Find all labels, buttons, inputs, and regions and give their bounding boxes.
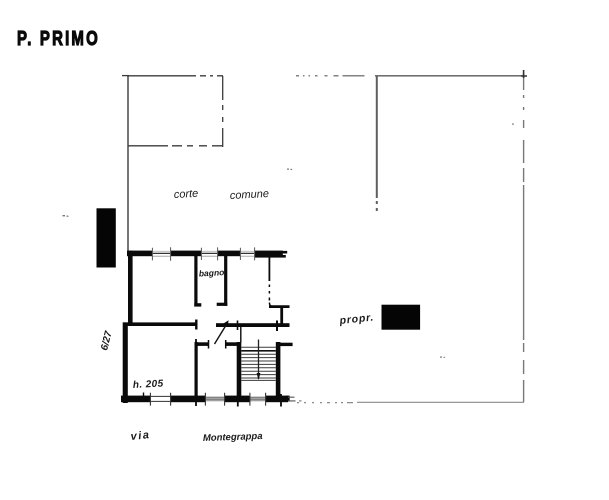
svg-text:comune: comune	[230, 188, 270, 202]
svg-text:corte: corte	[174, 188, 199, 201]
svg-text:h. 205: h. 205	[133, 378, 164, 391]
svg-text:propr.: propr.	[338, 311, 375, 327]
svg-text:Montegrappa: Montegrappa	[203, 431, 263, 444]
svg-text:bagno: bagno	[199, 267, 225, 278]
svg-text:P. PRIMO: P. PRIMO	[17, 27, 100, 50]
svg-text:via: via	[130, 429, 151, 443]
svg-text:6/27: 6/27	[99, 330, 114, 352]
